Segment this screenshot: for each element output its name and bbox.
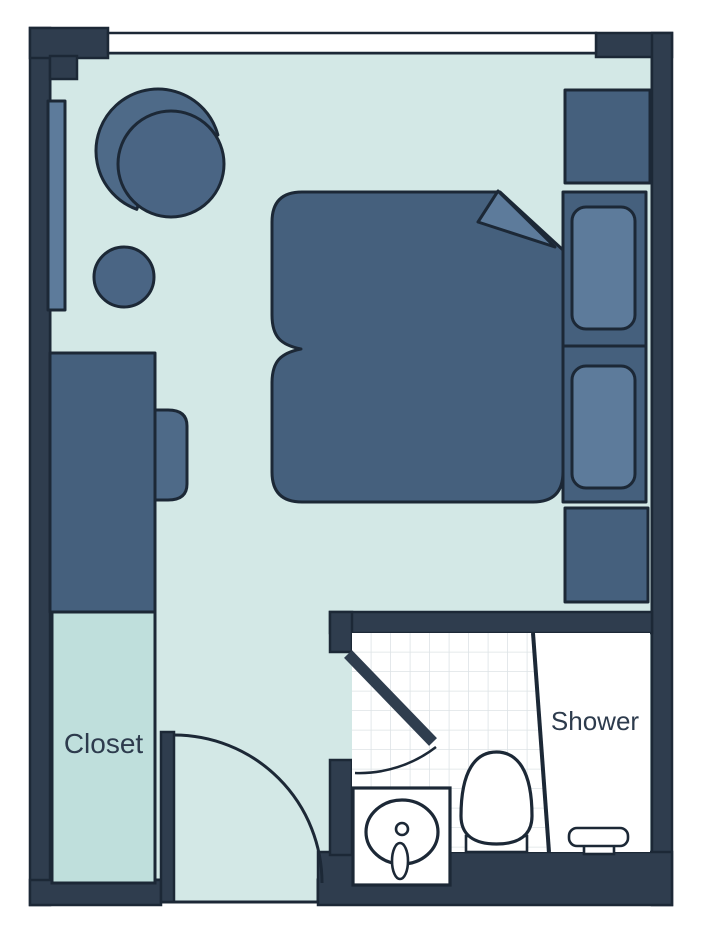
entry-door-icon xyxy=(161,732,174,902)
sink-faucet xyxy=(392,843,408,879)
armchair-seat-icon xyxy=(118,111,224,217)
sink-drain xyxy=(396,823,408,835)
top-left-wall-stub xyxy=(30,28,108,58)
bathroom-left-wall xyxy=(330,760,352,855)
desk-chair-icon xyxy=(155,410,187,500)
floor-plan-drawing xyxy=(0,0,726,931)
shower-label: Shower xyxy=(540,706,650,737)
closet-label: Closet xyxy=(52,728,155,760)
pillow-icon xyxy=(572,366,635,488)
right-wall xyxy=(652,33,672,905)
top-left-wall-step xyxy=(50,56,77,79)
nightstand-icon xyxy=(565,508,648,602)
pillow-icon xyxy=(572,207,635,329)
bathroom-top-wall xyxy=(330,612,652,633)
radiator-window-icon xyxy=(48,101,65,310)
toilet-icon xyxy=(461,752,532,844)
side-table-icon xyxy=(94,247,154,307)
nightstand-icon xyxy=(565,90,650,183)
floor-plan: Closet Shower xyxy=(0,0,726,931)
shower-bench-icon xyxy=(569,828,628,846)
window-icon xyxy=(108,33,596,53)
double-bed-icon xyxy=(272,192,563,502)
desk-icon xyxy=(50,353,155,612)
bathroom-wall-stub xyxy=(330,612,352,652)
